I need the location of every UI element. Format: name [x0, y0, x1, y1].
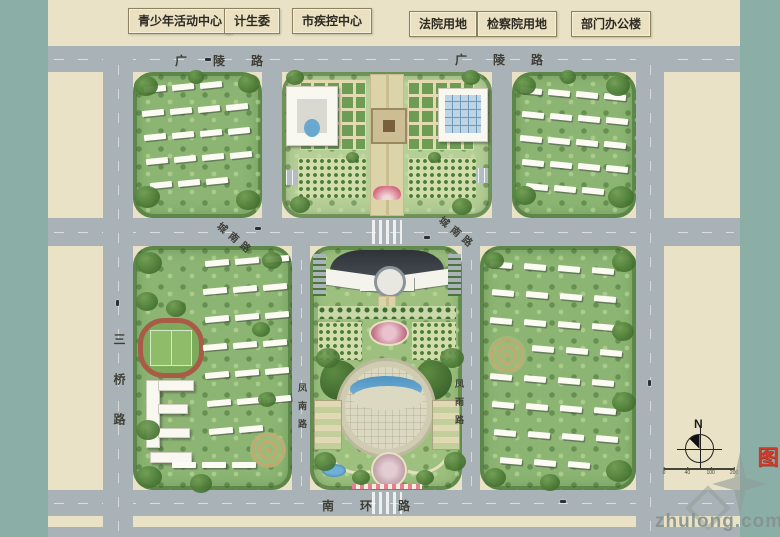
car-dot [116, 300, 119, 306]
tree-grove [612, 322, 634, 341]
sports-field [150, 330, 192, 366]
tree-grove [134, 186, 160, 208]
terraced-garden-east [488, 336, 526, 374]
orchard-grove-west [298, 158, 366, 198]
central-pavilion [371, 108, 407, 144]
tree-grove [560, 70, 576, 84]
crosswalk [372, 220, 402, 244]
tree-grove [314, 452, 336, 471]
road-label-fengnan: 凤南路 [296, 383, 309, 437]
label-department-office: 部门办公楼 [571, 11, 651, 37]
tree-grove [514, 186, 536, 205]
tree-grove [606, 460, 632, 482]
tree-grove [136, 420, 160, 440]
small-round-plaza [371, 452, 407, 488]
label-text: 检察院用地 [487, 17, 547, 31]
scale-tick-label: 0 [663, 470, 666, 476]
tree-grove [134, 76, 158, 96]
road-label-sanqiao: 三桥路 [111, 333, 128, 453]
scale-tick-label: 100 [706, 470, 714, 476]
tree-grove [286, 70, 304, 85]
scale-tick-label: 40 [685, 470, 691, 476]
tree-grove [136, 292, 158, 311]
road-label-nanhuan: 南环路 [322, 497, 436, 514]
court-building-footprint [286, 86, 338, 146]
tree-grove [440, 348, 464, 368]
label-text: 部门办公楼 [581, 17, 641, 31]
tree-grove [428, 152, 441, 163]
tree-grove [238, 74, 260, 93]
glass-atrium-roof [445, 95, 481, 133]
car-dot [255, 227, 261, 230]
tree-grove [258, 392, 276, 407]
label-court: 法院用地 [409, 11, 477, 37]
compass-north-label: N [694, 417, 703, 431]
road-label-fengyu: 凤雨路 [453, 379, 466, 433]
car-dot [424, 236, 430, 239]
school-building-bar [158, 404, 188, 414]
road-label-guangling-west: 广陵路 [175, 52, 289, 69]
tree-grove [452, 198, 472, 215]
tree-grove [416, 470, 434, 485]
fan-flowerbed [373, 186, 401, 200]
road-fengnan [292, 244, 310, 492]
label-youth-center: 青少年活动中心 [128, 8, 232, 34]
tree-boulevard [318, 306, 456, 319]
school-building-bar [158, 428, 190, 438]
label-text: 市疾控中心 [302, 14, 362, 28]
crescent-water-mask [352, 386, 424, 410]
school-building-bar [158, 380, 194, 391]
tree-grove [252, 322, 270, 337]
car-dot [648, 380, 651, 386]
civic-parking-east [448, 254, 461, 296]
tree-grove [612, 252, 636, 272]
label-procuratorate: 检察院用地 [477, 11, 557, 37]
tree-grove [136, 466, 162, 488]
running-track [138, 318, 204, 378]
courtyard-pool [304, 119, 320, 137]
road-inner-north-west [262, 70, 282, 220]
tree-grove [514, 76, 536, 95]
procuratorate-building-footprint [438, 88, 488, 142]
building-footprint [202, 462, 226, 468]
tree-grove [608, 186, 634, 208]
sheet-title: 总平面图 [751, 446, 780, 537]
tree-grove [462, 70, 480, 85]
axis-flower-circle [369, 320, 409, 346]
tree-grove [612, 392, 636, 412]
building-footprint [172, 462, 196, 468]
tree-grove [166, 300, 186, 317]
label-cdc: 市疾控中心 [292, 8, 372, 34]
building-footprint [232, 462, 256, 468]
tree-grove [190, 474, 212, 493]
tree-grove [316, 348, 340, 368]
tree-grove [136, 252, 162, 274]
label-text: 计生委 [234, 14, 270, 28]
tree-grove [484, 468, 506, 487]
label-family-planning: 计生委 [224, 8, 280, 34]
road-inner-north-east [492, 70, 512, 220]
civic-centre-rotunda [374, 266, 406, 298]
road-east-vertical [636, 46, 664, 537]
tree-grove [540, 474, 560, 491]
civic-parking-west [313, 254, 326, 296]
road-sanqiao [103, 46, 133, 537]
tree-grove [444, 452, 466, 471]
tree-grove [352, 470, 370, 485]
tree-grove [606, 76, 630, 96]
scale-bar: 040100200 [664, 468, 734, 479]
road-fengyu [462, 244, 480, 492]
tree-grove [484, 252, 504, 269]
tree-grove [290, 196, 310, 213]
label-text: 法院用地 [419, 17, 467, 31]
tree-grove [262, 252, 282, 269]
orchard-grove-east [408, 158, 476, 198]
road-label-guangling-east: 广陵路 [455, 51, 569, 68]
scale-bar-ticks: 040100200 [664, 470, 734, 479]
site-plan-canvas: 青少年活动中心 计生委 市疾控中心 法院用地 检察院用地 部门办公楼 广陵路 广… [0, 0, 780, 537]
compass-icon [685, 434, 714, 463]
label-text: 青少年活动中心 [138, 14, 222, 28]
car-dot [560, 500, 566, 503]
west-margin-band [0, 0, 48, 537]
tree-grove [236, 190, 260, 210]
tree-grove [346, 152, 359, 163]
tree-grove [188, 70, 204, 84]
